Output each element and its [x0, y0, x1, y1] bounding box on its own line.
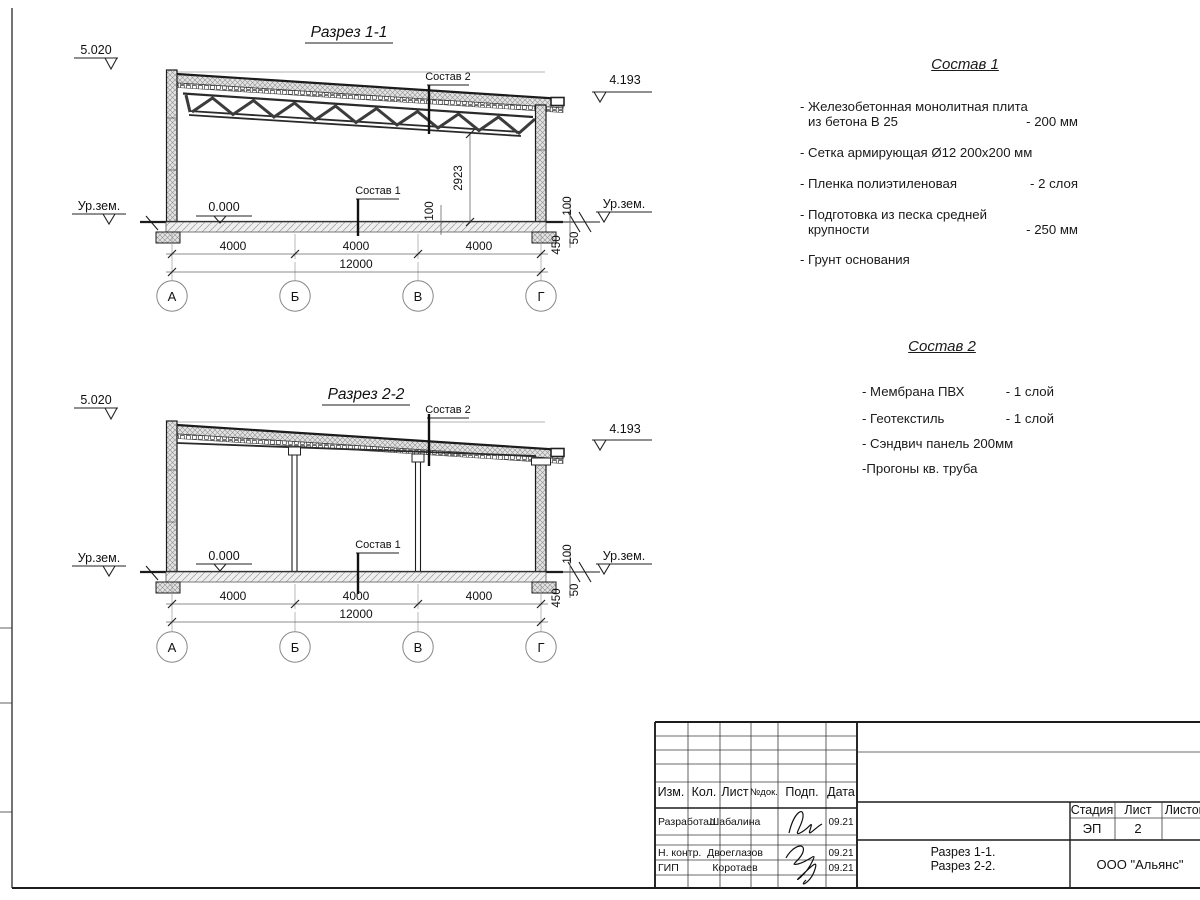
row-name-korotaev: Коротаев: [712, 862, 758, 874]
elevation-0000-label-1: 0.000: [208, 200, 239, 214]
stage-value: ЭП: [1083, 821, 1102, 836]
ground-level-left-label-1: Ур.зем.: [78, 199, 120, 213]
col-ndok: №док.: [750, 787, 778, 798]
notes2-line: -Прогоны кв. труба: [862, 461, 1054, 476]
row-role-nkontr: Н. контр.: [658, 847, 701, 859]
notes2-text-0: - Мембрана ПВХ: [862, 384, 964, 399]
row-name-shabalina: Шабалина: [710, 816, 761, 828]
dim-100-inner-1: 100: [424, 201, 436, 220]
ground-level-right-mark-1: Ур.зем.: [596, 197, 652, 222]
dim-2923: 2923: [453, 165, 465, 191]
elevation-4193-label-1: 4.193: [609, 73, 640, 87]
elevation-0000-mark-1: 0.000: [196, 200, 252, 223]
axis-b-2: Б: [291, 640, 300, 655]
callout-sostav1-label-1: Состав 1: [355, 185, 401, 197]
dim-4000-2b: 4000: [343, 589, 370, 603]
row-role-razrabotal: Разработал: [658, 816, 715, 828]
notes2-text-3: -Прогоны кв. труба: [862, 461, 977, 476]
notes2-line: - Геотекстиль - 1 слой: [862, 411, 1054, 426]
dim-12000-2: 12000: [339, 607, 373, 621]
dim-50-1: 50: [569, 232, 581, 245]
elevation-4193-mark-1: 4.193: [592, 73, 652, 102]
dim-12000-1: 12000: [339, 257, 373, 271]
dim-chain-1: 4000 4000 4000 12000: [166, 234, 548, 281]
axis-b-1: Б: [291, 289, 300, 304]
col-podp: Подп.: [785, 785, 818, 799]
ground-level-left-label-2: Ур.зем.: [78, 551, 120, 565]
dim-4000-1b: 4000: [343, 239, 370, 253]
elevation-5020-mark-1: 5.020: [74, 43, 118, 69]
notes2-text-1: - Геотекстиль: [862, 411, 944, 426]
notes2-list: - Мембрана ПВХ - 1 слой - Геотекстиль - …: [862, 0, 1054, 480]
callout-sostav2-label-1: Состав 2: [425, 71, 471, 83]
row-role-gip: ГИП: [658, 862, 679, 874]
notes2-text-2: - Сэндвич панель 200мм: [862, 436, 1013, 451]
section1-title: Разрез 1-1: [311, 24, 388, 41]
sheet-label: Лист: [1124, 803, 1151, 817]
ground-level-right-label-2: Ур.зем.: [603, 549, 645, 563]
section-2-2-drawing: Разрез 2-2 5.020: [72, 386, 652, 662]
dim-4000-1c: 4000: [466, 239, 493, 253]
signature-1: [789, 812, 822, 834]
notes2-line: - Мембрана ПВХ - 1 слой: [862, 384, 1054, 399]
ground-level-right-label-1: Ур.зем.: [603, 197, 645, 211]
dim-450-1: 450: [551, 235, 563, 254]
elevation-5020-mark-2: 5.020: [74, 393, 118, 419]
axis-v-2: В: [414, 640, 423, 655]
axis-a-1: А: [168, 289, 177, 304]
dim-4000-1a: 4000: [220, 239, 247, 253]
axis-g-2: Г: [537, 640, 544, 655]
col-kol: Кол.: [692, 785, 717, 799]
col-list: Лист: [721, 785, 748, 799]
elevation-4193-mark-2: 4.193: [592, 422, 652, 450]
ground-level-left-mark-1: Ур.зем.: [72, 199, 126, 224]
doc-name-line1: Разрез 1-1.: [931, 845, 996, 859]
row-name-dvoeglazov: Двоеглазов: [707, 847, 763, 859]
ground-level-left-mark-2: Ур.зем.: [72, 551, 126, 576]
col-izm: Изм.: [658, 785, 685, 799]
elevation-0000-label-2: 0.000: [208, 549, 239, 563]
col-data: Дата: [827, 785, 855, 799]
axis-bubbles-1: А Б В Г: [157, 281, 556, 311]
dim-100-right-2: 100: [562, 544, 574, 563]
dim-4000-2c: 4000: [466, 589, 493, 603]
sheet-value: 2: [1134, 821, 1141, 836]
ground-level-right-mark-2: Ур.зем.: [596, 549, 652, 574]
callout-sostav2-label-2: Состав 2: [425, 404, 471, 416]
dim-chain-2: 4000 4000 4000 12000: [166, 584, 548, 632]
company-name: ООО "Альянс": [1097, 857, 1184, 872]
notes2-value-1: - 1 слой: [1006, 411, 1054, 426]
elevation-0000-mark-2: 0.000: [196, 549, 252, 571]
notes1-text-5: крупности: [800, 222, 869, 237]
section2-title: Разрез 2-2: [328, 386, 405, 403]
doc-name-line2: Разрез 2-2.: [931, 859, 996, 873]
axis-bubbles-2: А Б В Г: [157, 632, 556, 662]
notes2-value-0: - 1 слой: [1006, 384, 1054, 399]
title-block: Изм. Кол. Лист №док. Подп. Дата Разработ…: [655, 722, 1200, 888]
signature-2: [786, 846, 816, 884]
row-date-1: 09.21: [828, 817, 853, 828]
drawing-sheet: Разрез 1-1 5.020: [0, 0, 1200, 900]
elevation-5020-label-1: 5.020: [80, 43, 111, 57]
axis-v-1: В: [414, 289, 423, 304]
axis-a-2: А: [168, 640, 177, 655]
notes2-line: - Сэндвич панель 200мм: [862, 436, 1054, 451]
dim-4000-2a: 4000: [220, 589, 247, 603]
sheets-label: Листов: [1165, 803, 1200, 817]
section-1-1-drawing: Разрез 1-1 5.020: [72, 24, 652, 311]
dim-100-right-1: 100: [562, 196, 574, 215]
elevation-5020-label-2: 5.020: [80, 393, 111, 407]
elevation-4193-label-2: 4.193: [609, 422, 640, 436]
row-date-3: 09.21: [828, 863, 853, 874]
dim-450-2: 450: [551, 588, 563, 607]
stage-label: Стадия: [1071, 803, 1114, 817]
callout-sostav1-label-2: Состав 1: [355, 539, 401, 551]
callout-sostav1-2: Состав 1: [355, 539, 401, 594]
axis-g-1: Г: [537, 289, 544, 304]
dim-50-2: 50: [569, 584, 581, 597]
row-date-2: 09.21: [828, 848, 853, 859]
